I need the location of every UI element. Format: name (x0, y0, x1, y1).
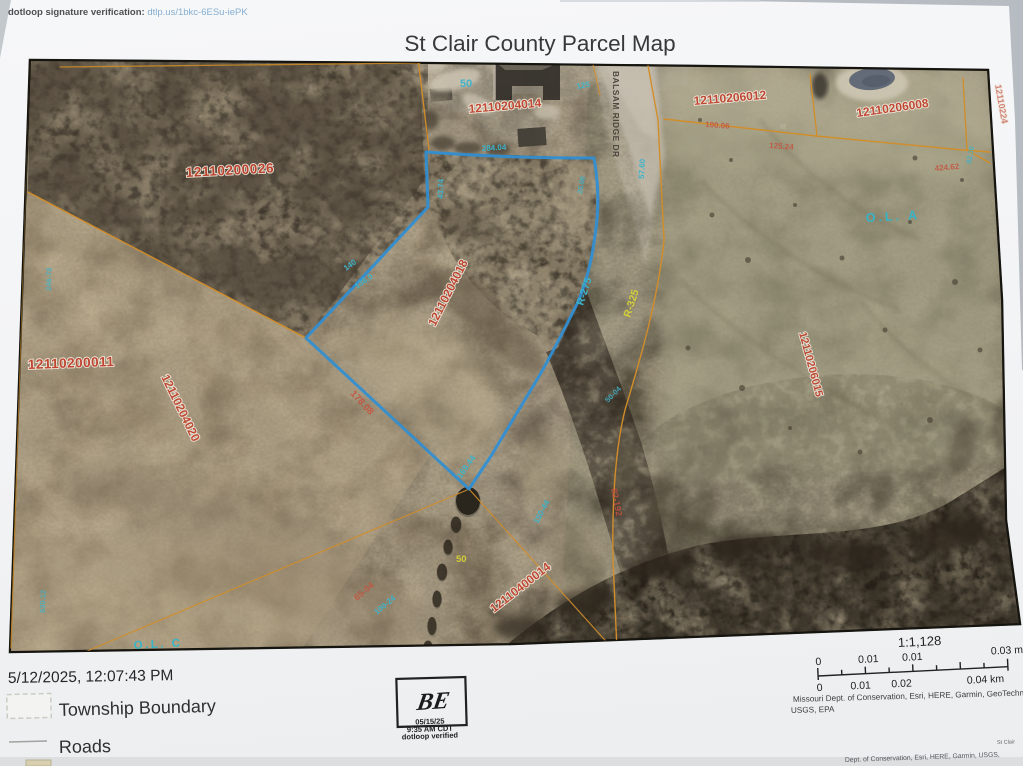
svg-text:284.04: 284.04 (482, 143, 507, 153)
svg-text:125.24: 125.24 (769, 141, 795, 152)
svg-text:43.74: 43.74 (436, 178, 446, 199)
svg-text:246-78: 246-78 (44, 267, 54, 291)
svg-text:0: 0 (815, 656, 822, 668)
svg-text:BALSAM RIDGE DR: BALSAM RIDGE DR (611, 71, 621, 158)
svg-text:50: 50 (456, 554, 467, 565)
svg-text:12110224: 12110224 (993, 84, 1010, 125)
svg-text:0.02: 0.02 (891, 677, 912, 690)
svg-text:0.01: 0.01 (850, 679, 871, 692)
svg-text:Missouri Dept. of Conservat: Missouri Dept. of Conservation, Esri, HE… (793, 688, 1023, 704)
svg-text:0.03 mi: 0.03 mi (991, 644, 1023, 658)
svg-text:Roads: Roads (59, 736, 111, 757)
svg-text:O.L. A: O.L. A (865, 208, 920, 225)
svg-text:BE: BE (414, 687, 452, 716)
svg-text:St Clair County Parcel Map: St Clair County Parcel Map (404, 31, 675, 56)
svg-text:0: 0 (816, 682, 823, 694)
svg-text:USGS, EPA: USGS, EPA (791, 705, 835, 715)
svg-text:57.60: 57.60 (637, 158, 647, 179)
svg-text:0.01: 0.01 (902, 651, 923, 664)
svg-text:0.01: 0.01 (858, 653, 879, 666)
svg-text:50: 50 (460, 78, 472, 90)
svg-text:O.L. C: O.L. C (133, 637, 182, 652)
svg-text:100.06: 100.06 (705, 120, 731, 131)
svg-text:dotloop signature verification: dotloop signature verification: dtlp.us/… (8, 7, 248, 18)
svg-text:12110200011: 12110200011 (28, 354, 115, 372)
svg-text:5/12/2025, 12:07:43 PM: 5/12/2025, 12:07:43 PM (8, 667, 174, 687)
svg-text:Township Boundary: Township Boundary (59, 696, 217, 720)
svg-text:St Clair: St Clair (997, 739, 1015, 746)
svg-text:0.04 km: 0.04 km (967, 673, 1005, 687)
svg-text:630.12: 630.12 (38, 590, 48, 613)
svg-text:dotloop verified: dotloop verified (402, 731, 459, 742)
svg-text:1:1,128: 1:1,128 (898, 633, 942, 650)
